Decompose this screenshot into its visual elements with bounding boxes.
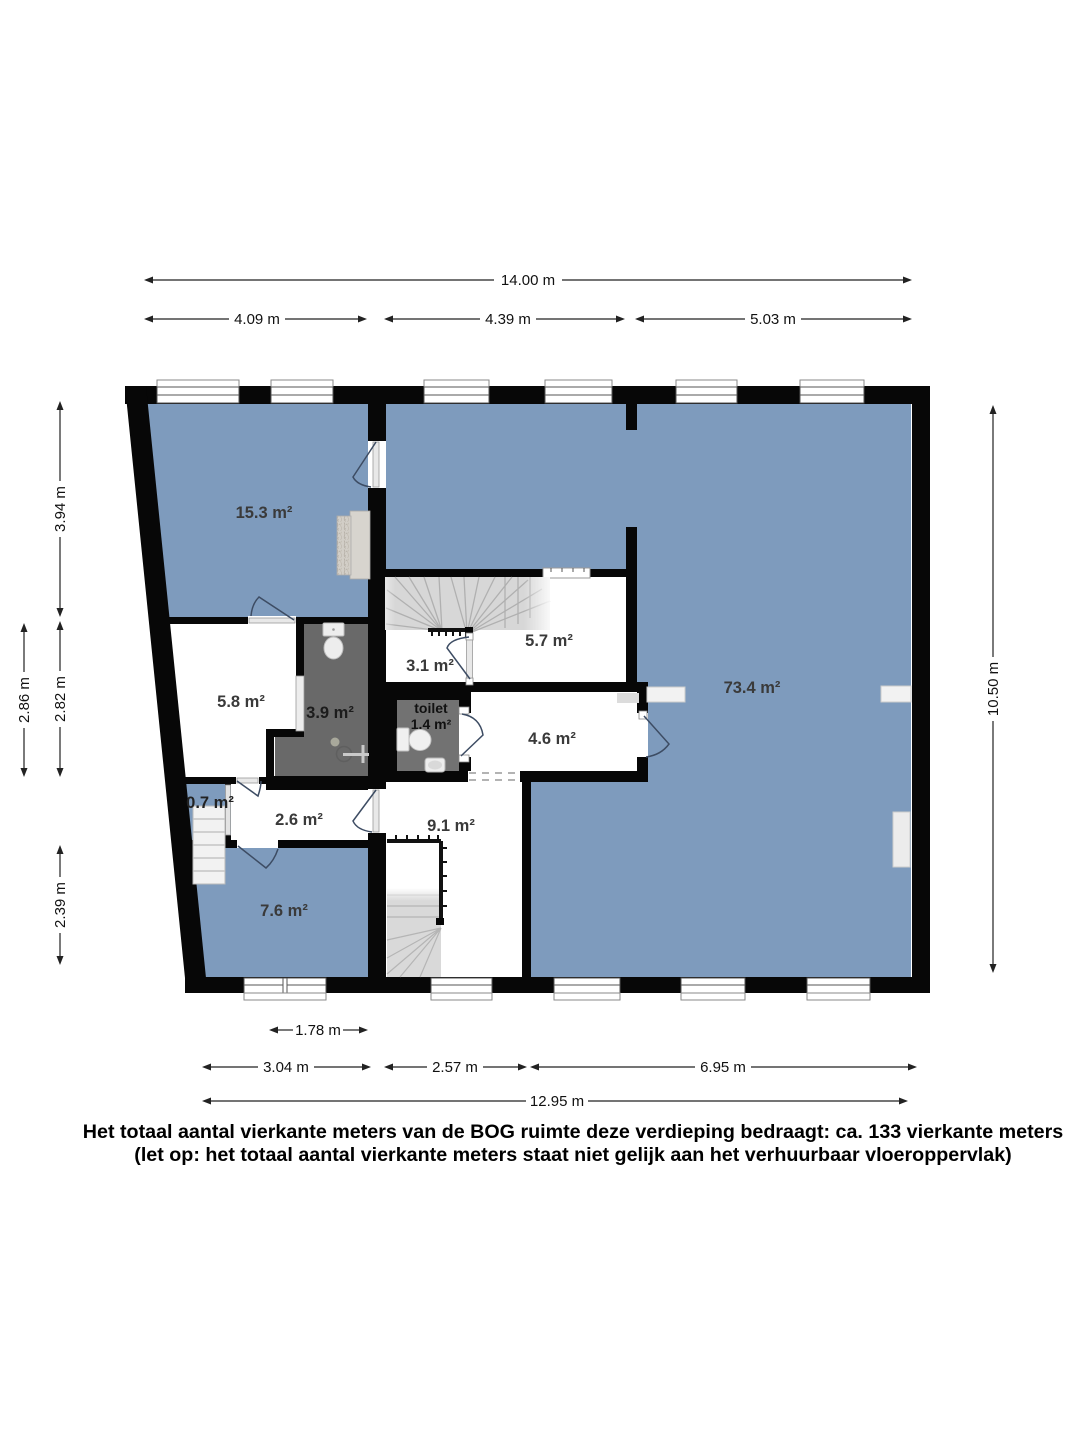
svg-text:0.7 m²: 0.7 m² <box>186 794 234 812</box>
svg-text:7.6 m²: 7.6 m² <box>260 902 308 920</box>
svg-text:6.95 m: 6.95 m <box>700 1059 746 1076</box>
svg-text:73.4 m²: 73.4 m² <box>724 679 781 697</box>
svg-text:toilet: toilet <box>414 700 448 716</box>
svg-text:2.57 m: 2.57 m <box>432 1059 478 1076</box>
svg-text:1.4 m²: 1.4 m² <box>411 716 452 732</box>
svg-text:Het totaal aantal vierkante me: Het totaal aantal vierkante meters van d… <box>83 1121 1063 1143</box>
svg-text:1.78 m: 1.78 m <box>295 1022 341 1039</box>
svg-text:5.7 m²: 5.7 m² <box>525 632 573 650</box>
svg-text:4.09 m: 4.09 m <box>234 311 280 328</box>
svg-text:2.86 m: 2.86 m <box>16 677 33 723</box>
svg-text:12.95 m: 12.95 m <box>530 1093 584 1110</box>
svg-text:3.04 m: 3.04 m <box>263 1059 309 1076</box>
svg-text:4.6 m²: 4.6 m² <box>528 730 576 748</box>
svg-text:2.82 m: 2.82 m <box>52 676 69 722</box>
svg-text:3.9 m²: 3.9 m² <box>306 704 354 722</box>
svg-text:15.3 m²: 15.3 m² <box>236 504 293 522</box>
svg-text:3.1 m²: 3.1 m² <box>406 657 454 675</box>
svg-text:2.39 m: 2.39 m <box>52 882 69 928</box>
svg-text:10.50 m: 10.50 m <box>985 662 1002 716</box>
svg-text:5.03 m: 5.03 m <box>750 311 796 328</box>
svg-text:5.8 m²: 5.8 m² <box>217 693 265 711</box>
svg-text:(let op: het totaal aantal vie: (let op: het totaal aantal vierkante met… <box>134 1144 1011 1166</box>
svg-text:4.39 m: 4.39 m <box>485 311 531 328</box>
svg-text:2.6 m²: 2.6 m² <box>275 811 323 829</box>
svg-text:9.1 m²: 9.1 m² <box>427 817 475 835</box>
svg-text:14.00 m: 14.00 m <box>501 272 555 289</box>
svg-text:3.94 m: 3.94 m <box>52 486 69 532</box>
